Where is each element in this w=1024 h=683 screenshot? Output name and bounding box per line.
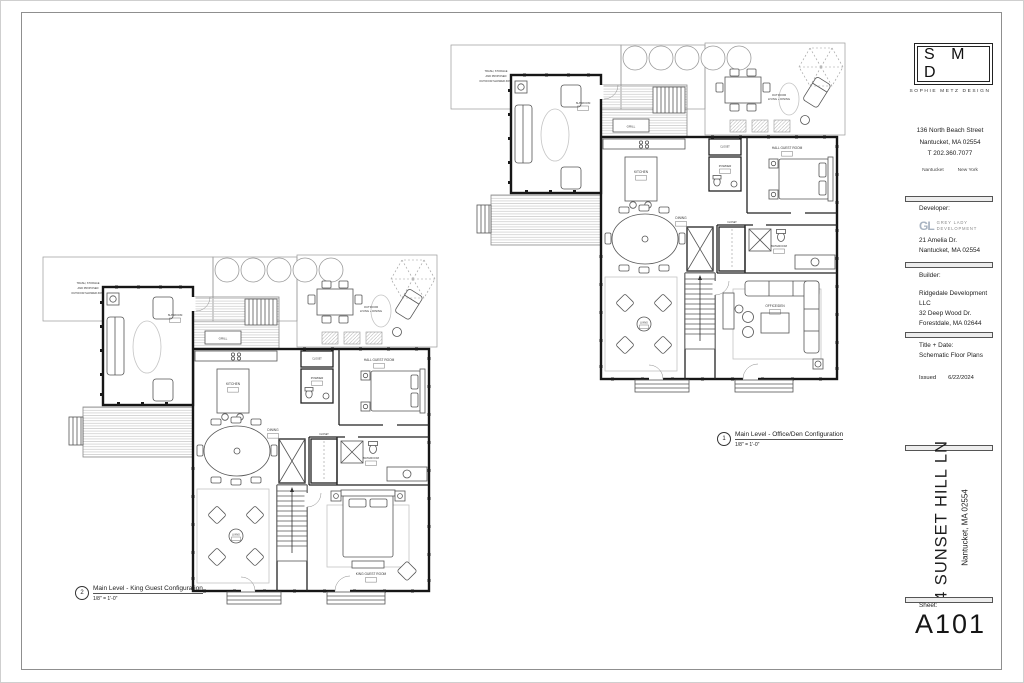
sheet-number: A101 <box>915 609 986 640</box>
builder-heading: Builder: <box>919 271 999 281</box>
floor-plan-2: TRASH, STORAGE AND PROPOSED OUTDOOR SHOW… <box>41 253 441 605</box>
plan2-scale: 1/8" = 1'-0" <box>93 596 203 602</box>
plan2-caption: 2 Main Level - King Guest Configuration … <box>75 585 203 602</box>
svg-text:CLOSET: CLOSET <box>319 433 329 436</box>
side-deck <box>477 195 601 245</box>
svg-text:HALL GUEST ROOM: HALL GUEST ROOM <box>772 146 803 150</box>
developer-logo: GL GREY LADY DEVELOPMENT <box>919 220 999 231</box>
title-date-section: Title + Date: Schematic Floor Plans Issu… <box>919 341 999 383</box>
note-line2: AND PROPOSED <box>486 74 507 78</box>
hedge <box>730 120 746 132</box>
note-line3: OUTDOOR SHOWER ZONE <box>479 79 513 83</box>
svg-text:GRILL: GRILL <box>627 125 636 129</box>
tree-icon <box>675 46 699 70</box>
hedge <box>366 332 382 344</box>
svg-text:KITCHEN: KITCHEN <box>634 170 649 174</box>
plan1-title: Main Level - Office/Den Configuration <box>735 431 843 440</box>
plan1-wrap: TRASH, STORAGE AND PROPOSED OUTDOOR SHOW… <box>449 41 849 398</box>
builder-section: Builder: Ridgedale Development LLC 32 De… <box>919 271 999 329</box>
tree-icon <box>649 46 673 70</box>
tree-icon <box>727 46 751 70</box>
porch-steps <box>227 592 385 604</box>
tree-icon <box>267 258 291 282</box>
svg-text:BATHROOM: BATHROOM <box>771 244 788 248</box>
svg-text:CLOSET: CLOSET <box>727 221 737 224</box>
svg-text:POWDER: POWDER <box>311 376 324 380</box>
svg-text:BATHROOM: BATHROOM <box>363 456 380 460</box>
note-line2: AND PROPOSED <box>78 286 99 290</box>
plan1-scale: 1/8" = 1'-0" <box>735 442 843 448</box>
plan2-number: 2 <box>75 586 89 600</box>
drawing-sheet: TRASH, STORAGE AND PROPOSED OUTDOOR SHOW… <box>0 0 1024 683</box>
plan1-number: 1 <box>717 432 731 446</box>
title-heading: Title + Date: <box>919 341 999 351</box>
svg-text:CLOSET: CLOSET <box>720 146 730 149</box>
firm-offices: NantucketNew York <box>897 168 1003 173</box>
project-name: 4 SUNSET HILL LN <box>933 421 952 621</box>
developer-address: 21 Amelia Dr. <box>919 236 999 246</box>
svg-text:CLOSET: CLOSET <box>312 358 322 361</box>
hedge <box>322 332 338 344</box>
firm-address: 136 North Beach Street Nantucket, MA 025… <box>897 125 1003 160</box>
tree-icon <box>623 46 647 70</box>
svg-text:SUNROOM: SUNROOM <box>168 313 183 317</box>
project-location: Nantucket, MA 02554 <box>961 458 970 598</box>
tree-icon <box>701 46 725 70</box>
svg-text:LIVING + DINING: LIVING + DINING <box>768 97 790 101</box>
stairs <box>685 273 715 349</box>
svg-text:HALL GUEST ROOM: HALL GUEST ROOM <box>364 358 395 362</box>
note-line3: OUTDOOR SHOWER ZONE <box>71 291 105 295</box>
developer-heading: Developer: <box>919 204 999 214</box>
svg-text:KING GUEST ROOM: KING GUEST ROOM <box>356 572 387 576</box>
hedge <box>774 120 790 132</box>
sheet-title: Schematic Floor Plans <box>919 351 999 361</box>
issued-row: Issued 6/22/2024 <box>919 373 999 383</box>
divider-bar <box>905 262 993 268</box>
floor-plan-1: TRASH, STORAGE AND PROPOSED OUTDOOR SHOW… <box>449 41 849 393</box>
divider-bar <box>905 196 993 202</box>
note-line1: TRASH, STORAGE <box>77 281 100 285</box>
side-deck <box>69 407 193 457</box>
hedge <box>752 120 768 132</box>
grill-deck: GRILL <box>193 297 279 349</box>
tree-icon <box>241 258 265 282</box>
builder-line: Ridgedale Development LLC <box>919 289 999 309</box>
outdoor-table <box>725 77 761 103</box>
hedge <box>344 332 360 344</box>
firm-logo: S M D <box>917 46 990 82</box>
stairs <box>277 485 307 561</box>
tree-icon <box>215 258 239 282</box>
grey-lady-logo-icon: GL <box>919 221 934 231</box>
svg-text:LIVING: LIVING <box>640 322 648 325</box>
outdoor-table <box>317 289 353 315</box>
note-line1: TRASH, STORAGE <box>485 69 508 73</box>
firm-name: SOPHIE METZ DESIGN <box>905 89 995 94</box>
plan2-title: Main Level - King Guest Configuration <box>93 585 203 594</box>
plan2-wrap: TRASH, STORAGE AND PROPOSED OUTDOOR SHOW… <box>41 253 441 610</box>
svg-text:DINING: DINING <box>267 428 279 432</box>
svg-text:LIVING: LIVING <box>232 534 240 537</box>
sheet-label: Sheet: <box>919 602 937 609</box>
svg-text:GRILL: GRILL <box>219 337 228 341</box>
svg-text:DINING: DINING <box>675 216 687 220</box>
tree-icon <box>293 258 317 282</box>
grill-deck: GRILL <box>601 85 687 137</box>
svg-text:SUNROOM: SUNROOM <box>576 101 591 105</box>
porch-steps <box>635 380 793 392</box>
svg-text:LIVING + DINING: LIVING + DINING <box>360 309 382 313</box>
developer-section: Developer: GL GREY LADY DEVELOPMENT 21 A… <box>919 204 999 256</box>
svg-text:OFFICE/DEN: OFFICE/DEN <box>765 304 785 308</box>
svg-text:POWDER: POWDER <box>719 164 732 168</box>
svg-text:KITCHEN: KITCHEN <box>226 382 241 386</box>
plan1-caption: 1 Main Level - Office/Den Configuration … <box>717 431 843 448</box>
tree-icon <box>319 258 343 282</box>
divider-bar <box>905 332 993 338</box>
